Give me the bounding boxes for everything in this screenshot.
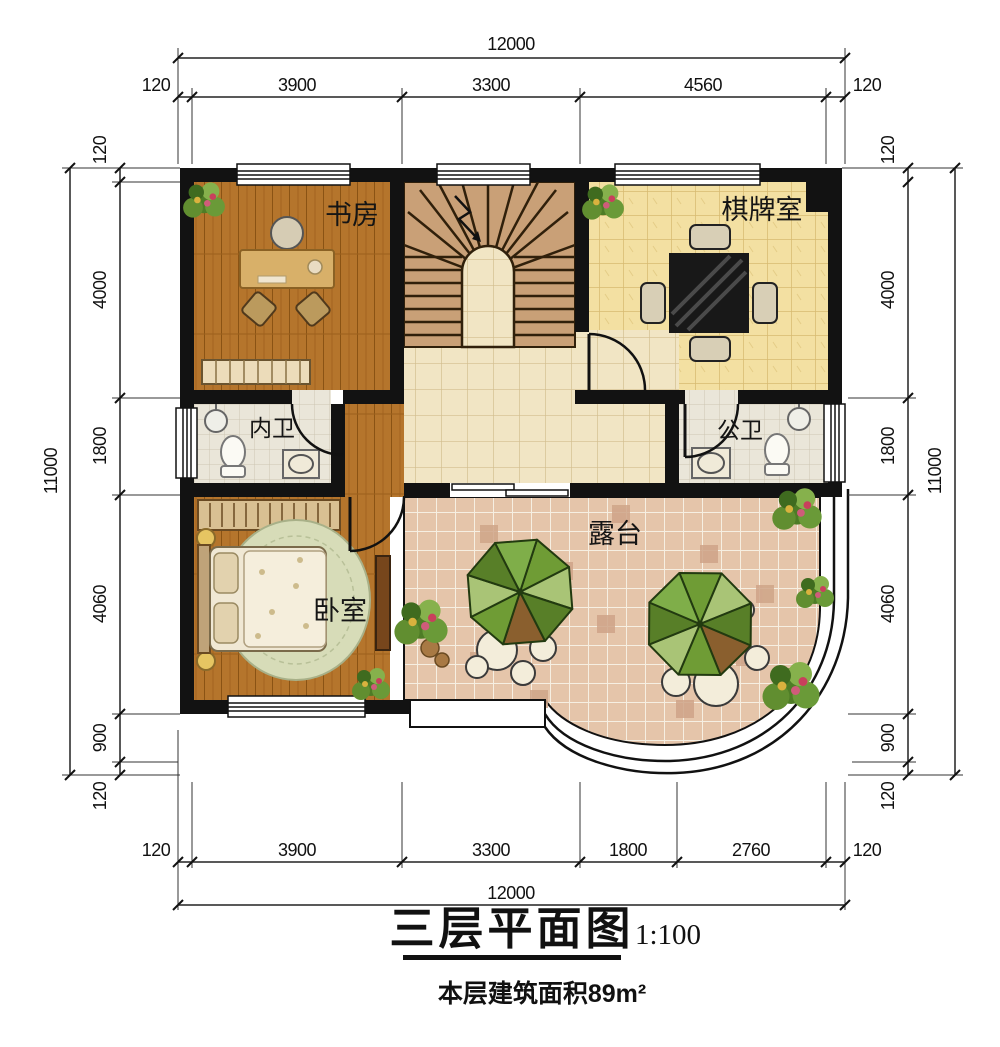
dim-left-seg-1: 4000: [90, 270, 110, 309]
dim-bottom-seg-1: 3900: [278, 840, 317, 860]
dim-right-seg-3: 4060: [878, 584, 898, 623]
floor-plan-sheet: 书房 棋牌室 内卫 公卫 卧室 露台 12000 120 3900 3300 4…: [0, 0, 1000, 1047]
dim-bottom-seg-2: 3300: [472, 840, 511, 860]
tv-cabinet: [376, 556, 390, 650]
dim-top-seg-3: 4560: [684, 75, 723, 95]
dim-left-seg-4: 900: [90, 723, 110, 752]
dimensions-right: 11000 120 4000 1800 4060 900 120: [842, 135, 963, 810]
dim-bottom-overall: 12000: [487, 883, 535, 903]
bedside-lamp: [197, 652, 215, 670]
desk-lamp: [308, 260, 322, 274]
title-block: 三层平面图 1:100 本层建筑面积89m²: [389, 904, 701, 1008]
bedroom-window: [228, 696, 365, 717]
dim-top-seg-1: 3900: [278, 75, 317, 95]
area-note: 本层建筑面积89m²: [438, 979, 646, 1008]
dimensions-bottom: 120 3900 3300 1800 2760 120 12000: [142, 730, 882, 910]
dim-bottom-seg-3: 1800: [609, 840, 648, 860]
dim-bottom-seg-4: 2760: [732, 840, 771, 860]
chess-chair-east: [753, 283, 777, 323]
sheet-title: 三层平面图: [389, 904, 634, 954]
dim-right-seg-0: 120: [878, 135, 898, 164]
inner-bath-label: 内卫: [249, 415, 295, 441]
bed-headboard: [198, 545, 210, 653]
chess-chair-north: [690, 225, 730, 249]
pillow: [214, 553, 238, 593]
public-bath-window: [824, 404, 845, 482]
dimensions-top: 12000 120 3900 3300 4560 120: [142, 34, 882, 164]
shower-head: [788, 408, 810, 430]
dim-right-seg-2: 1800: [878, 426, 898, 465]
dim-left-seg-0: 120: [90, 135, 110, 164]
dim-right-seg-1: 4000: [878, 270, 898, 309]
pillow: [214, 603, 238, 643]
dim-bottom-seg-5: 120: [853, 840, 882, 860]
floor-plan-drawing: 书房 棋牌室 内卫 公卫 卧室 露台 12000 120 3900 3300 4…: [0, 0, 1000, 1047]
corridor-floor: [345, 404, 404, 497]
dim-left-seg-3: 4060: [90, 584, 110, 623]
terrace-label: 露台: [588, 519, 642, 549]
dimensions-left: 11000 120 4000 1800 4060 900 120: [41, 135, 180, 810]
terrace-stump: [435, 653, 449, 667]
public-bath-label: 公卫: [717, 417, 763, 443]
dim-right-seg-5: 120: [878, 781, 898, 810]
bookshelf: [202, 360, 310, 384]
toilet: [765, 434, 789, 466]
shower-head: [205, 410, 227, 432]
study-label: 书房: [325, 200, 379, 230]
dim-bottom-seg-0: 120: [142, 840, 171, 860]
dim-right-seg-4: 900: [878, 723, 898, 752]
terrace-plant-left: [394, 600, 447, 645]
study-window: [237, 164, 350, 185]
stair-window: [437, 164, 530, 185]
toilet: [221, 436, 245, 468]
inner-bath-window: [176, 408, 197, 478]
dim-left-overall: 11000: [41, 447, 61, 494]
title-underline: [403, 955, 621, 960]
dim-top-seg-0: 120: [142, 75, 171, 95]
chess-chair-south: [690, 337, 730, 361]
chess-room-window: [615, 164, 760, 185]
terrace-step: [410, 700, 545, 727]
dim-top-seg-2: 3300: [472, 75, 511, 95]
bedroom-label: 卧室: [313, 596, 367, 626]
hall-floor: [404, 330, 679, 483]
dim-left-seg-5: 120: [90, 781, 110, 810]
desk-blotter: [258, 276, 286, 283]
dim-left-seg-2: 1800: [90, 426, 110, 465]
stair-well-arch: [462, 246, 514, 347]
dim-top-seg-4: 120: [853, 75, 882, 95]
chess-room-label: 棋牌室: [722, 195, 803, 225]
terrace-sliding-door: [450, 483, 570, 497]
staircase: [404, 182, 575, 347]
dim-top-overall: 12000: [487, 34, 535, 54]
chess-chair-west: [641, 283, 665, 323]
dim-right-overall: 11000: [925, 447, 945, 494]
sheet-scale: 1:100: [635, 919, 701, 951]
desk-chair: [271, 217, 303, 249]
